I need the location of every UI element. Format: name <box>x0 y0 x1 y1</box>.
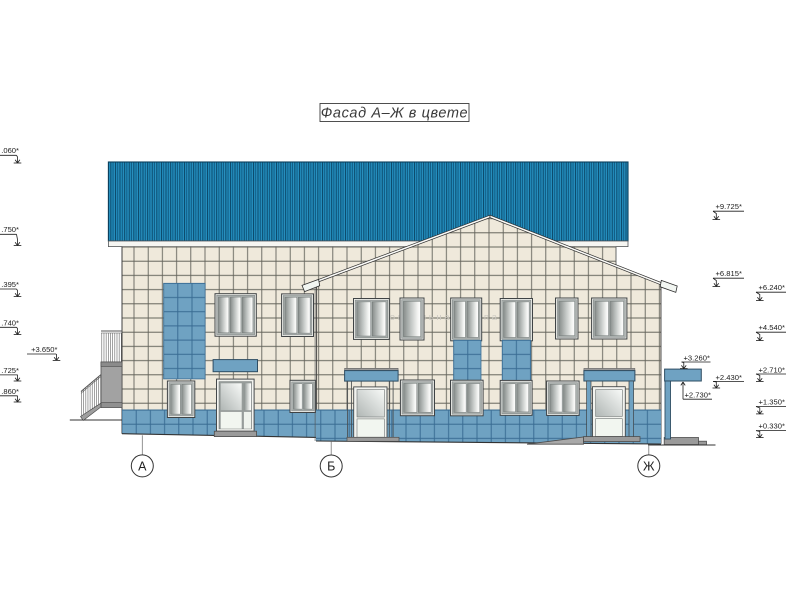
svg-text:с т р о и т е л ь н а я к о: с т р о и т е л ь н а я к о м п а н и я <box>367 312 520 323</box>
svg-text:+3.260*: +3.260* <box>684 353 710 362</box>
svg-text:Фасад А–Ж в цвете: Фасад А–Ж в цвете <box>321 106 468 122</box>
svg-text:.725*: .725* <box>1 366 19 375</box>
svg-text:.740*: .740* <box>1 319 19 328</box>
svg-text:+4.540*: +4.540* <box>759 323 785 332</box>
svg-text:.860*: .860* <box>1 387 19 396</box>
svg-text:+6.815*: +6.815* <box>716 269 742 278</box>
svg-text:Ж: Ж <box>643 459 655 473</box>
svg-text:+1.350*: +1.350* <box>759 398 785 407</box>
svg-text:+3.650*: +3.650* <box>31 345 57 354</box>
svg-text:Б: Б <box>327 459 335 473</box>
svg-text:+2.730*: +2.730* <box>685 391 711 400</box>
svg-text:.060*: .060* <box>1 146 19 155</box>
svg-text:+9.725*: +9.725* <box>716 202 742 211</box>
svg-text:+2.430*: +2.430* <box>716 373 742 382</box>
svg-text:.395*: .395* <box>1 280 19 289</box>
svg-text:+0.330*: +0.330* <box>759 422 785 431</box>
svg-text:+6.240*: +6.240* <box>759 283 785 292</box>
svg-text:.750*: .750* <box>1 225 19 234</box>
svg-text:А: А <box>138 459 147 473</box>
svg-text:+2.710*: +2.710* <box>759 366 785 375</box>
